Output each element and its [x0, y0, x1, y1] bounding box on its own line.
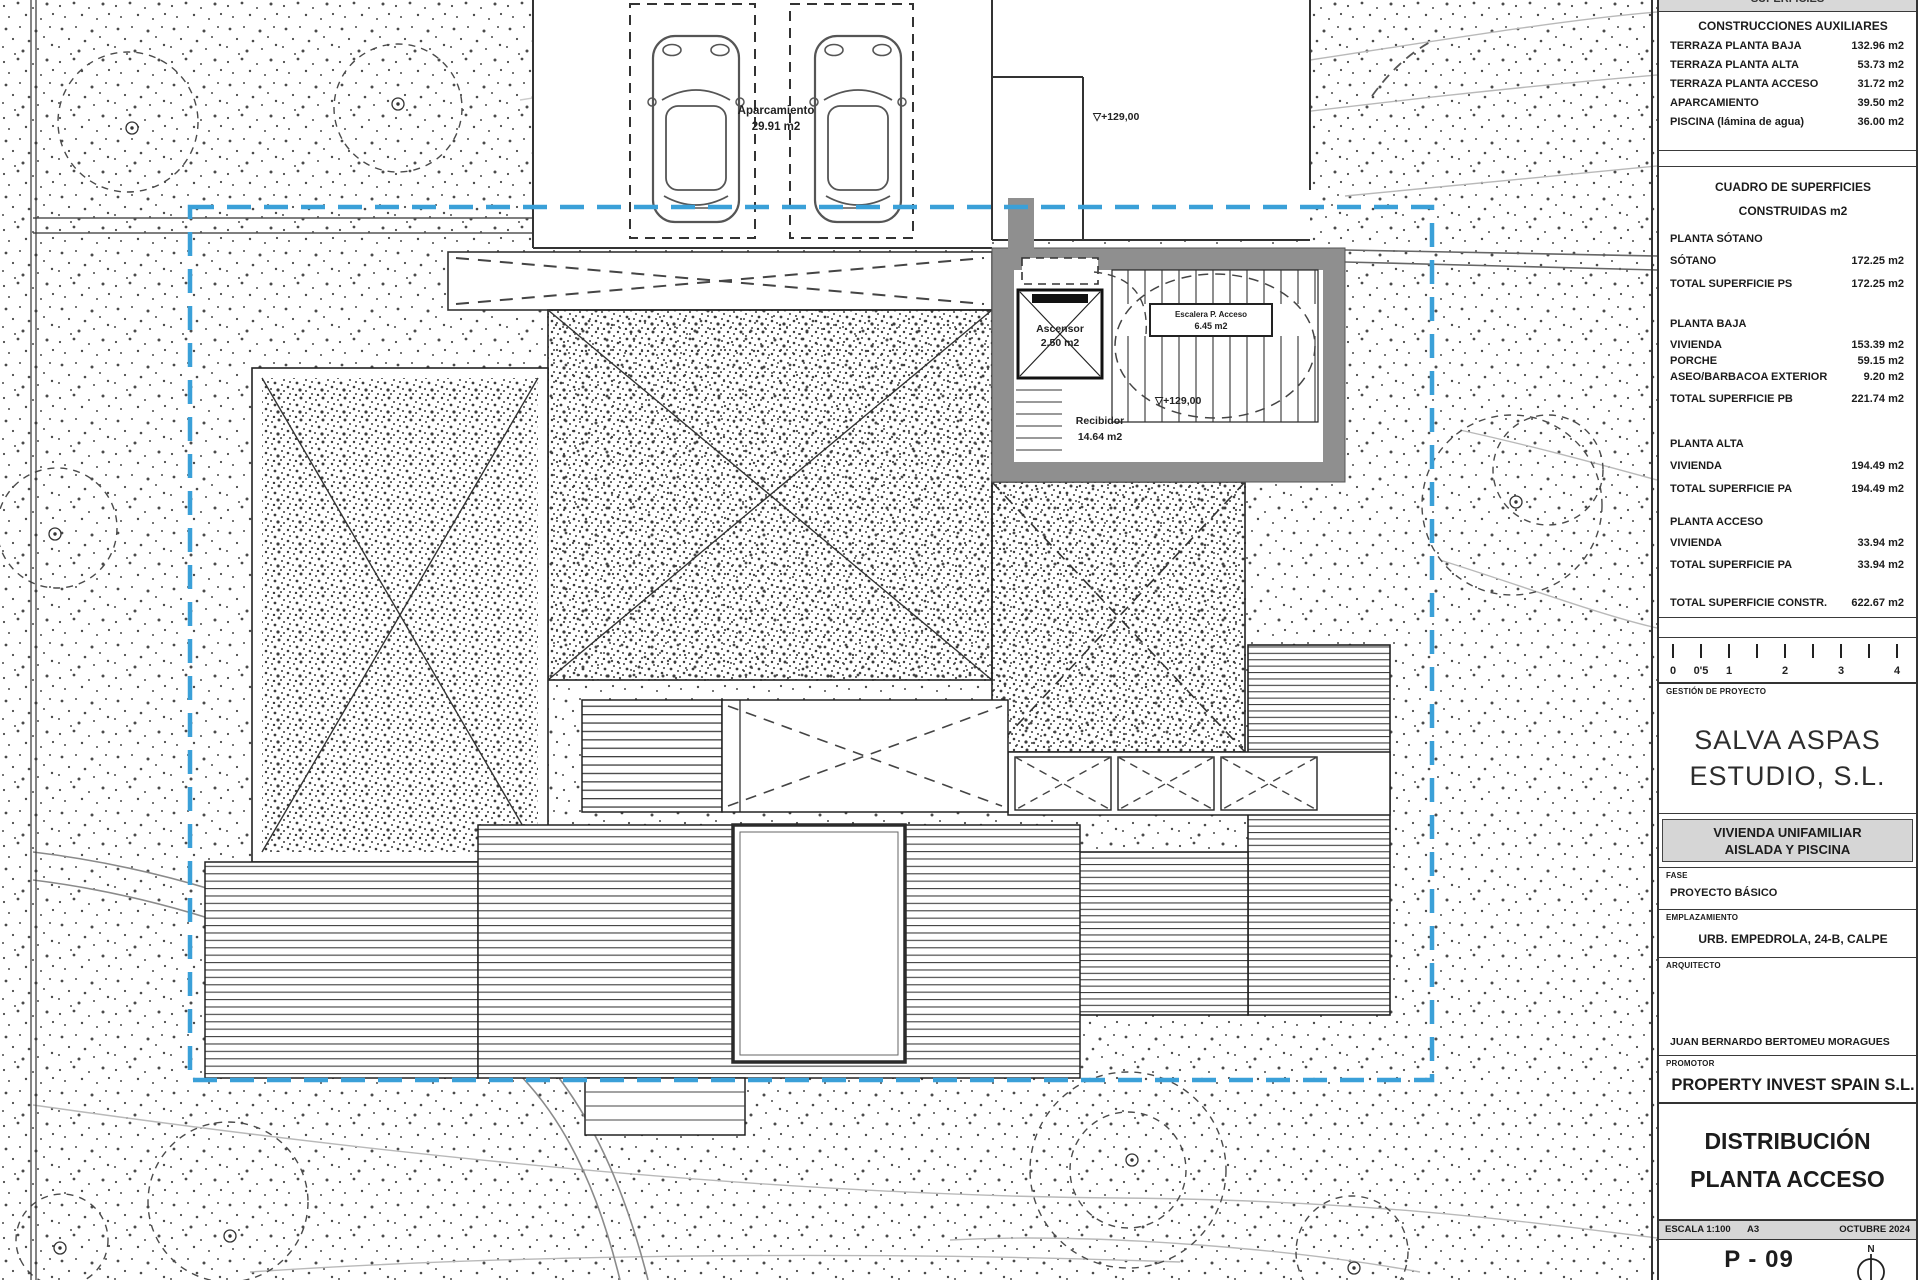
- arquitecto-block: ARQUITECTO JUAN BERNARDO BERTOMEU MORAGU…: [1659, 958, 1916, 1056]
- studio-line2: ESTUDIO, S.L.: [1659, 758, 1916, 794]
- pool: [733, 825, 905, 1062]
- emplazamiento-label: EMPLAZAMIENTO: [1666, 913, 1738, 922]
- table-row: ASEO/BARBACOA EXTERIOR9.20 m2: [1670, 371, 1904, 386]
- row-value: 53.73 m2: [1858, 59, 1904, 74]
- sheet-number: P - 09: [1659, 1246, 1859, 1274]
- studio-line1: SALVA ASPAS: [1659, 722, 1916, 758]
- door-dashed: [1022, 258, 1098, 284]
- superficies-header: SUPERFICIES: [1659, 0, 1916, 12]
- roof-center: [548, 310, 992, 680]
- cuadro-subtitle: CONSTRUIDAS m2: [1670, 204, 1916, 218]
- row-value: 172.25 m2: [1851, 278, 1904, 293]
- row-value: 622.67 m2: [1851, 597, 1904, 612]
- porch-strip: [448, 252, 992, 310]
- row-value: 33.94 m2: [1858, 537, 1904, 552]
- recibidor-label: Recibidor: [1076, 415, 1124, 427]
- skylight-row: [1008, 752, 1390, 815]
- row-label: PISCINA (lámina de agua): [1670, 116, 1804, 131]
- site-plan: Aparcamiento 29.91 m2 ▽+129,00: [0, 0, 1657, 1280]
- meta-bar: ESCALA 1:100 A3 OCTUBRE 2024: [1659, 1220, 1916, 1240]
- gestion-label: GESTIÓN DE PROYECTO: [1666, 687, 1766, 696]
- promotor-label: PROMOTOR: [1666, 1059, 1715, 1068]
- lift: Ascensor 2.50 m2: [1018, 290, 1102, 378]
- north-arrow-icon: N: [1841, 1240, 1901, 1280]
- escalera-label: Escalera P. Acceso: [1175, 310, 1247, 319]
- drawing-title: DISTRIBUCIÓN PLANTA ACCESO: [1659, 1122, 1916, 1198]
- aparcamiento-label: Aparcamiento: [738, 105, 815, 117]
- row-value: 172.25 m2: [1851, 255, 1904, 270]
- row-label: TOTAL SUPERFICIE PB: [1670, 393, 1793, 408]
- aux-title: CONSTRUCCIONES AUXILIARES: [1670, 19, 1916, 33]
- row-label: VIVIENDA: [1670, 537, 1722, 552]
- aparcamiento-area: 29.91 m2: [752, 121, 801, 133]
- deck: [205, 825, 1080, 1078]
- table-row: TERRAZA PLANTA BAJA132.96 m2: [1670, 40, 1904, 55]
- row-label: ASEO/BARBACOA EXTERIOR: [1670, 371, 1827, 386]
- drawing-title-line1: DISTRIBUCIÓN: [1659, 1122, 1916, 1160]
- scale-tick-label: 0: [1670, 665, 1676, 677]
- car-top-view: [648, 36, 744, 222]
- scale-tick-label: 1: [1726, 665, 1732, 677]
- row-label: APARCAMIENTO: [1670, 97, 1759, 112]
- upper-terrace-band: [582, 700, 1008, 812]
- level-mark-court: ▽+129,00: [1092, 111, 1139, 123]
- aux-constructions-table: CONSTRUCCIONES AUXILIARES TERRAZA PLANTA…: [1659, 12, 1916, 151]
- divider-band: [1659, 151, 1916, 167]
- cuadro-title: CUADRO DE SUPERFICIES: [1670, 180, 1916, 194]
- scale-text: ESCALA 1:100: [1665, 1224, 1731, 1235]
- scale-tick-label: 0'5: [1694, 665, 1709, 677]
- group-heading: PLANTA ALTA: [1670, 438, 1744, 450]
- row-label: VIVIENDA: [1670, 460, 1722, 475]
- ascensor-area: 2.50 m2: [1041, 337, 1080, 349]
- table-row: TOTAL SUPERFICIE PS172.25 m2: [1670, 278, 1904, 293]
- scale-bar-graphic: 0 0'5 1 2 3 4: [1659, 638, 1918, 682]
- emplazamiento-block: EMPLAZAMIENTO URB. EMPEDROLA, 24-B, CALP…: [1659, 910, 1916, 958]
- level-mark-hall: ▽+129,00: [1154, 395, 1201, 407]
- row-value: 194.49 m2: [1851, 460, 1904, 475]
- recibidor-area: 14.64 m2: [1078, 431, 1123, 443]
- paper-size: A3: [1747, 1224, 1759, 1235]
- row-value: 9.20 m2: [1864, 371, 1904, 386]
- table-row: TOTAL SUPERFICIE PA33.94 m2: [1670, 559, 1904, 574]
- table-row: PORCHE59.15 m2: [1670, 355, 1904, 370]
- staircase: Escalera P. Acceso 6.45 m2: [1094, 270, 1318, 422]
- table-row: TERRAZA PLANTA ACCESO31.72 m2: [1670, 78, 1904, 93]
- table-row: TOTAL SUPERFICIE PA194.49 m2: [1670, 483, 1904, 498]
- promotor-name: PROPERTY INVEST SPAIN S.L.: [1670, 1076, 1916, 1095]
- row-value: 194.49 m2: [1851, 483, 1904, 498]
- row-label: TOTAL SUPERFICIE PA: [1670, 559, 1792, 574]
- drawing-title-block: DISTRIBUCIÓN PLANTA ACCESO: [1659, 1104, 1916, 1220]
- ascensor-label: Ascensor: [1036, 323, 1084, 335]
- sheet-number-block: P - 09 N: [1659, 1240, 1916, 1280]
- group-heading: PLANTA ACCESO: [1670, 516, 1763, 528]
- row-label: TOTAL SUPERFICIE CONSTR.: [1670, 597, 1827, 612]
- row-value: 31.72 m2: [1858, 78, 1904, 93]
- arquitecto-label: ARQUITECTO: [1666, 961, 1721, 970]
- row-label: TERRAZA PLANTA ACCESO: [1670, 78, 1818, 93]
- car-top-view: [810, 36, 906, 222]
- row-value: 221.74 m2: [1851, 393, 1904, 408]
- project-title-box: VIVIENDA UNIFAMILIAR AISLADA Y PISCINA: [1662, 819, 1913, 862]
- date-text: OCTUBRE 2024: [1839, 1224, 1910, 1235]
- row-value: 36.00 m2: [1858, 116, 1904, 131]
- row-label: SÓTANO: [1670, 255, 1716, 270]
- promotor-block: PROMOTOR PROPERTY INVEST SPAIN S.L.: [1659, 1056, 1916, 1104]
- north-label: N: [1867, 1244, 1874, 1255]
- project-line2: AISLADA Y PISCINA: [1663, 841, 1912, 858]
- table-row: VIVIENDA33.94 m2: [1670, 537, 1904, 552]
- table-row: SÓTANO172.25 m2: [1670, 255, 1904, 270]
- table-row: PISCINA (lámina de agua)36.00 m2: [1670, 116, 1904, 131]
- row-value: 33.94 m2: [1858, 559, 1904, 574]
- row-label: PORCHE: [1670, 355, 1717, 370]
- superficies-header-text: SUPERFICIES: [1659, 0, 1916, 5]
- roof-left: [252, 368, 548, 862]
- group-heading: PLANTA BAJA: [1670, 318, 1746, 330]
- row-label: TERRAZA PLANTA BAJA: [1670, 40, 1802, 55]
- total-row: TOTAL SUPERFICIE CONSTR.622.67 m2: [1670, 597, 1904, 612]
- table-row: APARCAMIENTO39.50 m2: [1670, 97, 1904, 112]
- fase-label: FASE: [1666, 871, 1688, 880]
- row-label: VIVIENDA: [1670, 339, 1722, 354]
- roof-right: [992, 482, 1245, 752]
- scale-bar: 0 0'5 1 2 3 4: [1659, 638, 1916, 684]
- arquitecto-name: JUAN BERNARDO BERTOMEU MORAGUES: [1670, 1036, 1890, 1048]
- row-label: TOTAL SUPERFICIE PA: [1670, 483, 1792, 498]
- scale-tick-label: 4: [1894, 665, 1901, 677]
- emplazamiento-value: URB. EMPEDROLA, 24-B, CALPE: [1670, 932, 1916, 946]
- scale-tick-label: 2: [1782, 665, 1788, 677]
- table-row: VIVIENDA153.39 m2: [1670, 339, 1904, 354]
- row-label: TOTAL SUPERFICIE PS: [1670, 278, 1792, 293]
- studio-block: GESTIÓN DE PROYECTO SALVA ASPAS ESTUDIO,…: [1659, 684, 1916, 814]
- surfaces-table: CUADRO DE SUPERFICIES CONSTRUIDAS m2 PLA…: [1659, 167, 1916, 618]
- table-row: TOTAL SUPERFICIE PB221.74 m2: [1670, 393, 1904, 408]
- garage-area: Aparcamiento 29.91 m2: [533, 0, 992, 248]
- project-block: VIVIENDA UNIFAMILIAR AISLADA Y PISCINA: [1659, 814, 1916, 868]
- fase-block: FASE PROYECTO BÁSICO: [1659, 868, 1916, 910]
- row-value: 59.15 m2: [1858, 355, 1904, 370]
- scale-tick-label: 3: [1838, 665, 1844, 677]
- drawing-sheet: Aparcamiento 29.91 m2 ▽+129,00: [0, 0, 1920, 1280]
- deck-steps: [585, 1078, 745, 1135]
- row-label: TERRAZA PLANTA ALTA: [1670, 59, 1799, 74]
- studio-name: SALVA ASPAS ESTUDIO, S.L.: [1659, 722, 1916, 794]
- row-value: 153.39 m2: [1851, 339, 1904, 354]
- row-value: 39.50 m2: [1858, 97, 1904, 112]
- table-row: TERRAZA PLANTA ALTA53.73 m2: [1670, 59, 1904, 74]
- title-block: SUPERFICIES CONSTRUCCIONES AUXILIARES TE…: [1657, 0, 1918, 1280]
- drawing-title-line2: PLANTA ACCESO: [1659, 1160, 1916, 1198]
- group-heading: PLANTA SÓTANO: [1670, 233, 1763, 245]
- fase-value: PROYECTO BÁSICO: [1670, 887, 1777, 899]
- project-line1: VIVIENDA UNIFAMILIAR: [1663, 824, 1912, 841]
- table-row: VIVIENDA194.49 m2: [1670, 460, 1904, 475]
- escalera-area: 6.45 m2: [1194, 321, 1227, 331]
- row-value: 132.96 m2: [1851, 40, 1904, 55]
- divider-band: [1659, 618, 1916, 638]
